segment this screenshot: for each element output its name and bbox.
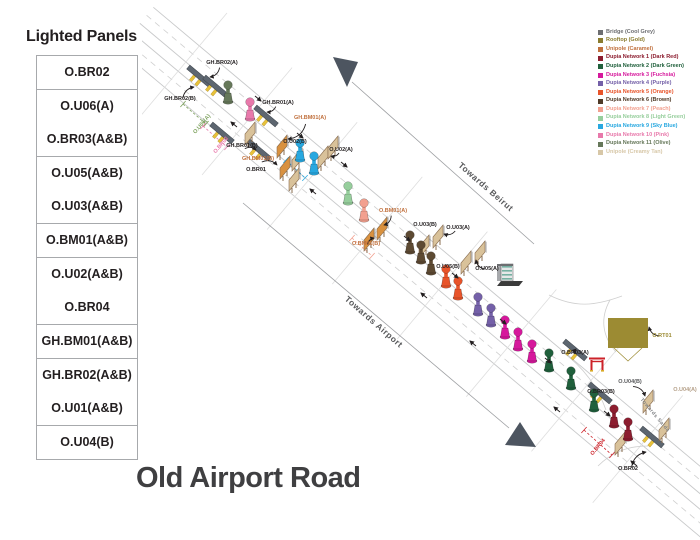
legend-color-swatch	[598, 56, 603, 61]
lighted-panel-item: O.U04(B)	[37, 426, 137, 459]
legend-color-swatch	[598, 107, 603, 112]
legend-item-label: Dupia Network 7 (Peach)	[606, 107, 671, 113]
panel-group: GH.BR02(A&B)O.U01(A&B)	[37, 358, 137, 425]
lighted-panel-item: O.U03(A&B)	[37, 190, 137, 223]
panel-group: O.U04(B)	[37, 425, 137, 460]
legend-item-label: Dupia Network 3 (Fuchsia)	[606, 73, 675, 79]
direction-arrow	[554, 407, 560, 412]
legend-item-label: Dupia Network 9 (Sky Blue)	[606, 124, 678, 130]
panel-label: O.BM01(B)	[352, 241, 380, 247]
dupia-marker	[245, 98, 255, 122]
legend-item-label: Dupia Network 8 (Light Green)	[606, 115, 685, 121]
annotation-arrow	[444, 231, 455, 235]
dupia-marker	[623, 418, 633, 442]
legend-item: Dupia Network 11 (Olive)	[598, 140, 698, 149]
dupia-marker	[609, 405, 619, 429]
legend-item-label: Dupia Network 6 (Brown)	[606, 98, 671, 104]
legend-color-swatch	[598, 150, 603, 155]
dupia-marker	[527, 340, 537, 364]
panel-label: GH.BM01(A)	[294, 115, 326, 121]
legend-color-swatch	[598, 81, 603, 86]
legend-color-swatch	[598, 142, 603, 147]
towards-airport-arrowhead	[505, 422, 536, 447]
legend-color-swatch	[598, 124, 603, 129]
legend-item: Rooftop (Gold)	[598, 37, 698, 46]
direction-arrow	[452, 273, 458, 278]
annotation-arrow	[633, 387, 645, 396]
panel-group: O.U06(A)O.BR03(A&B)	[37, 89, 137, 156]
panel-label: GH.BR01(A)	[262, 100, 294, 106]
lighted-panel-item: GH.BM01(A&B)	[37, 325, 137, 358]
direction-arrow	[421, 293, 427, 298]
panel-group: O.BR02	[37, 55, 137, 89]
panel-group: O.BM01(A&B)	[37, 223, 137, 257]
legend-color-swatch	[598, 64, 603, 69]
panel-label: GH.BR01(B)	[226, 143, 258, 149]
panel-label: O.BM01(A)	[379, 208, 407, 214]
panel-group: O.U02(A&B)O.BR04	[37, 257, 137, 324]
lighted-panels-list: O.BR02O.U06(A)O.BR03(A&B)O.U05(A&B)O.U03…	[36, 55, 138, 460]
legend-item-label: Dupia Network 4 (Purple)	[606, 81, 671, 87]
lighted-panel-item: O.U05(A&B)	[37, 157, 137, 190]
legend-item-label: Dupia Network 10 (Pink)	[606, 133, 669, 139]
legend-item: Dupia Network 6 (Brown)	[598, 97, 698, 106]
span-brackets	[180, 101, 614, 458]
legend-item: Dupia Network 4 (Purple)	[598, 80, 698, 89]
towards-beirut-arrowhead	[333, 57, 358, 87]
panel-label: O.U02(A)	[329, 147, 353, 153]
lighted-panel-item: O.U06(A)	[37, 90, 137, 123]
panel-label: O.U04(A)	[673, 387, 697, 393]
panel-label: O.BR03(B)	[587, 389, 615, 395]
panel-label: GH.BM01(B)	[242, 156, 274, 162]
lighted-panel-item: O.BR04	[37, 291, 137, 324]
panel-label: O.U03(B)	[413, 222, 437, 228]
legend-item: Dupia Network 10 (Pink)	[598, 131, 698, 140]
direction-arrow	[310, 189, 316, 194]
rooftop-marker	[608, 318, 648, 361]
annotation-arrow	[267, 107, 276, 112]
dupia-marker	[416, 241, 426, 265]
dupia-marker	[426, 252, 436, 276]
direction-arrow	[231, 122, 237, 127]
dupia-marker	[359, 199, 369, 223]
bridge-marker	[583, 382, 612, 409]
dupia-marker	[566, 367, 576, 391]
lighted-panel-item: O.U02(A&B)	[37, 258, 137, 291]
color-legend: Bridge (Cool Grey)Rooftop (Gold)Unipole …	[598, 28, 698, 157]
legend-item-label: Rooftop (Gold)	[606, 38, 645, 44]
legend-color-swatch	[598, 38, 603, 43]
panel-group: GH.BM01(A&B)	[37, 324, 137, 358]
dupia-marker	[343, 182, 353, 206]
panel-label: O.U03(A)	[446, 225, 470, 231]
lighted-panel-item: O.U01(A&B)	[37, 392, 137, 425]
panel-label: O.BR01	[246, 167, 266, 173]
legend-item: Dupia Network 5 (Orange)	[598, 88, 698, 97]
panel-label: GH.BR02(B)	[164, 96, 196, 102]
direction-label: Towards Beirut	[456, 160, 515, 213]
legend-item: Dupia Network 9 (Sky Blue)	[598, 123, 698, 132]
lighted-panels-legend: Lighted Panels O.BR02O.U06(A)O.BR03(A&B)…	[24, 28, 142, 460]
lighted-panel-item: O.BR03(A&B)	[37, 123, 137, 156]
legend-item-label: Dupia Network 2 (Dark Green)	[606, 64, 684, 70]
lighted-panel-item: GH.BR02(A&B)	[37, 359, 137, 392]
lighted-panel-item: O.BR02	[37, 56, 137, 89]
legend-item: Dupia Network 3 (Fuchsia)	[598, 71, 698, 80]
lighted-panels-title: Lighted Panels	[26, 28, 142, 46]
panel-label: O.U02(B)	[283, 139, 307, 145]
direction-label: Towards Airport	[343, 294, 405, 350]
panel-label: GH.BR02(A)	[206, 60, 238, 66]
panel-label: O.BR04	[590, 437, 608, 457]
legend-color-swatch	[598, 99, 603, 104]
panel-group: O.U05(A&B)O.U03(A&B)	[37, 156, 137, 223]
legend-item: Unipole (Caramel)	[598, 45, 698, 54]
legend-item: Dupia Network 7 (Peach)	[598, 105, 698, 114]
legend-color-swatch	[598, 47, 603, 52]
billboard-marker	[461, 251, 473, 276]
billboard-marker	[433, 225, 445, 250]
panel-label: O.RT01	[652, 333, 671, 339]
direction-arrow	[470, 341, 476, 346]
legend-item: Bridge (Cool Grey)	[598, 28, 698, 37]
legend-color-swatch	[598, 90, 603, 95]
map-title: Old Airport Road	[136, 462, 361, 495]
panel-label: O.U05(B)	[436, 264, 460, 270]
legend-item: Unipole (Creamy Tan)	[598, 148, 698, 157]
legend-item-label: Dupia Network 1 (Dark Red)	[606, 55, 678, 61]
direction-annotations	[243, 57, 536, 447]
building-marker	[497, 264, 523, 286]
dupia-marker	[453, 277, 463, 301]
billboard-marker	[377, 217, 389, 242]
dupia-marker	[405, 231, 415, 255]
legend-item: Dupia Network 8 (Light Green)	[598, 114, 698, 123]
dupia-marker	[309, 152, 319, 176]
legend-color-swatch	[598, 73, 603, 78]
legend-color-swatch	[598, 30, 603, 35]
panel-label: O.U04(B)	[618, 379, 642, 385]
dupia-marker	[544, 349, 554, 373]
legend-item-label: Unipole (Caramel)	[606, 47, 653, 53]
legend-color-swatch	[598, 116, 603, 121]
legend-item-label: Dupia Network 5 (Orange)	[606, 90, 674, 96]
gate-marker	[589, 358, 605, 372]
legend-color-swatch	[598, 133, 603, 138]
legend-item-label: Unipole (Creamy Tan)	[606, 150, 662, 156]
legend-item-label: Bridge (Cool Grey)	[606, 30, 655, 36]
lighted-panel-item: O.BM01(A&B)	[37, 224, 137, 257]
legend-item: Dupia Network 2 (Dark Green)	[598, 62, 698, 71]
panel-label: O.BR03(A)	[561, 350, 589, 356]
panel-label: O.U05(A)	[475, 266, 499, 272]
direction-labels: Towards BeirutTowards AirportTowards Sai…	[343, 160, 671, 434]
direction-arrow	[341, 162, 347, 167]
legend-item: Dupia Network 1 (Dark Red)	[598, 54, 698, 63]
legend-item-label: Dupia Network 11 (Olive)	[606, 141, 671, 147]
old-airport-road-map-page: GH.BR02(A)GH.BR02(B)GH.BR01(A)GH.BM01(A)…	[0, 0, 700, 540]
panel-label: O.BR02	[618, 466, 638, 472]
